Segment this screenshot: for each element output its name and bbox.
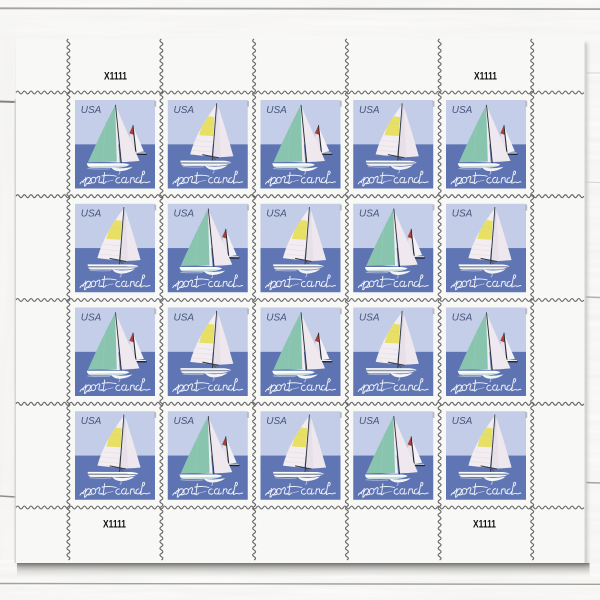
svg-text:X1111: X1111 <box>474 71 497 83</box>
svg-text:X1111: X1111 <box>104 71 127 83</box>
svg-text:X1111: X1111 <box>473 519 496 531</box>
svg-text:X1111: X1111 <box>103 519 126 531</box>
